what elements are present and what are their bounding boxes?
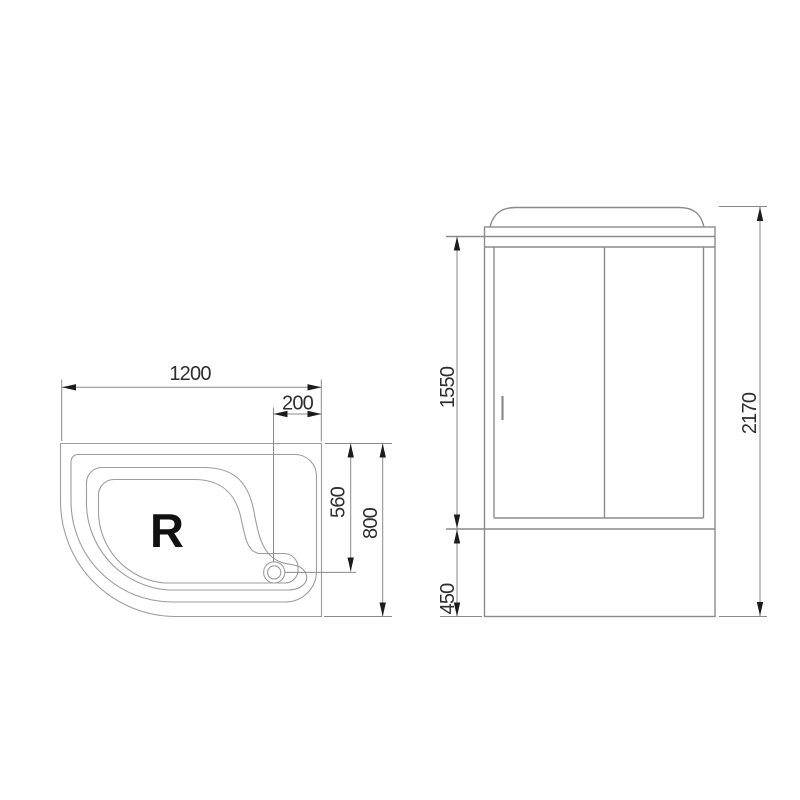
cabin-front-view: 1550 450 2170 xyxy=(437,207,767,617)
arrowhead-top xyxy=(757,207,763,221)
drain-outer-ring xyxy=(264,562,285,583)
arrowhead-top xyxy=(454,237,460,251)
dimension-value: 800 xyxy=(360,507,382,539)
arrowhead-bottom xyxy=(348,558,354,572)
dim-total-height-2170: 2170 xyxy=(719,207,767,617)
drain-inner-ring xyxy=(268,566,281,579)
arrowhead-right xyxy=(308,384,322,390)
dim-drain-offset-200: 200 xyxy=(274,393,322,563)
dim-base-height-450: 450 xyxy=(437,530,482,617)
arrowhead-top xyxy=(380,444,386,458)
arrowhead-top xyxy=(454,530,460,544)
dimension-value: 450 xyxy=(437,583,459,615)
arrowhead-bottom xyxy=(380,603,386,617)
dimension-value: 1550 xyxy=(437,366,459,408)
technical-drawing: R 1200 200 560 xyxy=(0,0,800,800)
dimension-value: 1200 xyxy=(169,363,211,385)
drawing-page: R 1200 200 560 xyxy=(0,0,800,800)
cabin-body-outline xyxy=(485,227,716,617)
dim-drain-depth-560: 560 xyxy=(285,444,392,573)
dimension-value: 560 xyxy=(328,486,350,518)
dimension-value: 200 xyxy=(282,393,314,415)
tray-top-view: R 1200 200 560 xyxy=(61,363,393,617)
roof-dome xyxy=(490,208,704,228)
dim-depth-800: 800 xyxy=(324,444,392,617)
dimension-value: 2170 xyxy=(739,392,761,434)
arrowhead-top xyxy=(348,444,354,458)
tray-orientation-label: R xyxy=(150,504,184,557)
tray-basin-floor xyxy=(98,480,298,584)
dim-door-height-1550: 1550 xyxy=(437,237,460,529)
arrowhead-bottom xyxy=(757,602,763,616)
tray-rim-outer xyxy=(71,455,317,603)
arrowhead-bottom xyxy=(454,515,460,529)
arrowhead-left xyxy=(62,384,76,390)
